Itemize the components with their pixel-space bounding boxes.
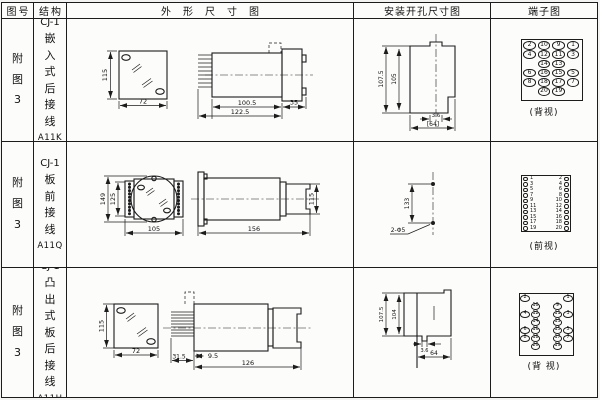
- dim-body-length: 100.5: [238, 99, 257, 107]
- terminal-9: 9: [553, 303, 562, 310]
- terminal-5: 5: [563, 327, 572, 334]
- terminal-10: 10: [538, 41, 550, 50]
- terminal-20: 20: [538, 87, 550, 96]
- header-outline: 外形尺寸图: [67, 3, 354, 19]
- row1-fig-no: 附图3: [2, 19, 34, 142]
- dim-front-inner-height: 125: [109, 193, 117, 205]
- terminal-4: 4: [523, 50, 535, 59]
- terminal-7: 7: [567, 78, 579, 87]
- dim-total-length: 156: [248, 225, 260, 233]
- header-structure-label: 结构: [39, 3, 63, 18]
- terminal-16: 16: [531, 327, 540, 334]
- drawing-table-sheet: 图号 结构 外形尺寸图 安装开孔尺寸图 端子图 附图3 CJ-1 嵌入式后接线 …: [1, 2, 598, 398]
- terminal-1: 1: [567, 41, 579, 50]
- terminal-19: 19: [552, 87, 564, 96]
- dim-cutout-width: 64: [430, 350, 438, 357]
- drawing-table: 图号 结构 外形尺寸图 安装开孔尺寸图 端子图 附图3 CJ-1 嵌入式后接线 …: [2, 3, 597, 397]
- row2-outline-cell: 149 125 105 156 115: [67, 142, 354, 268]
- dim-side-height: 115: [308, 193, 316, 205]
- terminal-circle-4: [564, 182, 568, 186]
- row2-fig-no: 附图3: [2, 142, 34, 268]
- dim-offset: 9.5: [208, 352, 218, 360]
- terminal-6: 6: [523, 69, 535, 78]
- row2-structure: CJ-1 板前接线 A11Q: [34, 142, 67, 268]
- terminal-circle-17: [523, 221, 527, 225]
- dim-total-length: 122.5: [231, 108, 250, 116]
- mounting-drawing-a11q: 133 2-Φ5: [354, 142, 491, 267]
- fig-no-text: 附图3: [11, 49, 24, 112]
- row1-structure: CJ-1 嵌入式后接线 A11K: [34, 19, 67, 142]
- dim-cutout-inner-height: 105: [391, 73, 398, 85]
- row2-mounting-cell: 133 2-Φ5: [354, 142, 491, 268]
- fig-no-text: 附图3: [11, 301, 24, 364]
- dim-cutout-inner-height: 104: [392, 309, 398, 320]
- terminal-circle-15: [523, 215, 527, 219]
- terminal-circle-14: [564, 210, 568, 214]
- terminal-8: 8: [520, 335, 529, 342]
- terminal-circle-10: [564, 199, 568, 203]
- terminal-18: 18: [531, 335, 540, 342]
- dim-front-height: 115: [101, 69, 109, 81]
- terminal-15: 15: [553, 327, 562, 334]
- label-hole-spec: 2-Φ5: [391, 227, 406, 234]
- terminal-circle-7: [523, 193, 527, 197]
- mounting-drawing-a11k: 107.5 105 3.6 [64]: [354, 19, 491, 141]
- dim-cutout-outer-height: 107.5: [379, 306, 385, 322]
- terminal-17: 17: [553, 335, 562, 342]
- dim-cutout-outer-height: 107.5: [378, 70, 385, 87]
- structure-code: A11K: [38, 133, 62, 142]
- dim-notch-width: 3.6: [421, 348, 429, 354]
- structure-model: CJ-1: [40, 19, 60, 28]
- dim-front-width: 72: [132, 347, 140, 355]
- terminal-circle-2: [564, 177, 568, 181]
- terminal-circle-16: [564, 215, 568, 219]
- dim-front-height: 149: [99, 193, 107, 205]
- row1-mounting-cell: 107.5 105 3.6 [64]: [354, 19, 491, 142]
- dim-hole-span: 133: [404, 198, 411, 210]
- terminal-7: 7: [563, 335, 572, 342]
- header-mounting: 安装开孔尺寸图: [354, 3, 491, 19]
- row3-structure: CJ-1 凸出式板后接线 A11H: [34, 268, 67, 397]
- terminal-13: 13: [553, 319, 562, 326]
- terminal-9: 9: [552, 41, 564, 50]
- terminal-4: 4: [520, 311, 529, 318]
- header-terminal: 端子图: [491, 3, 597, 19]
- terminal-circle-20: [564, 226, 568, 230]
- terminal-circle-19: [523, 226, 527, 230]
- header-structure: 结构: [34, 3, 67, 19]
- terminal-8: 8: [523, 78, 535, 87]
- structure-model: CJ-1: [40, 158, 60, 169]
- terminal-3: 3: [563, 311, 572, 318]
- terminal-17: 17: [552, 78, 564, 87]
- terminal-circle-1: [523, 177, 527, 181]
- terminal-6: 6: [520, 327, 529, 334]
- structure-desc: 凸出式板后接线: [44, 275, 57, 391]
- header-fig-no-label: 图号: [7, 3, 31, 18]
- terminal-caption: (背 视): [491, 359, 597, 372]
- dim-front-width: 105: [148, 225, 160, 233]
- dim-body-length: 126: [242, 359, 254, 367]
- terminal-caption: (背视): [491, 105, 597, 118]
- terminal-box: [519, 293, 574, 356]
- row3-mounting-cell: 107.5 104 3.6 64: [354, 268, 491, 397]
- row2-terminal-cell: (前视) 1357911131517192468101214161820: [491, 142, 597, 268]
- terminal-13: 13: [552, 60, 564, 69]
- terminal-20: 20: [531, 343, 540, 350]
- structure-desc: 嵌入式后接线: [44, 31, 57, 130]
- terminal-circle-9: [523, 199, 527, 203]
- dim-notch-width: 3.6: [432, 113, 441, 119]
- terminal-circle-8: [564, 193, 568, 197]
- row3-outline-cell: 115 72 9.5 31.5 126: [67, 268, 354, 397]
- row1-terminal-cell: (背视) 2109141211314136161558181772019: [491, 19, 597, 142]
- row3-terminal-cell: (背 视) 2104121461681820193111351571719: [491, 268, 597, 397]
- terminal-circle-13: [523, 210, 527, 214]
- terminal-11: 11: [552, 50, 564, 59]
- terminal-1: 1: [563, 295, 572, 302]
- terminal-11: 11: [553, 311, 562, 318]
- header-outline-label: 外形尺寸图: [161, 3, 271, 18]
- structure-model: CJ-1: [40, 268, 60, 272]
- terminal-12: 12: [538, 50, 550, 59]
- terminal-14: 14: [531, 319, 540, 326]
- structure-desc: 板前接线: [44, 172, 57, 238]
- terminal-3: 3: [567, 50, 579, 59]
- dim-cutout-width: [64]: [427, 121, 439, 128]
- outline-drawing-a11h: 115 72 9.5 31.5 126: [67, 268, 354, 397]
- header-mounting-label: 安装开孔尺寸图: [384, 3, 461, 18]
- row3-fig-no: 附图3: [2, 268, 34, 397]
- row1-outline-cell: 115 72 100.5 35 122.5: [67, 19, 354, 142]
- terminal-circle-11: [523, 204, 527, 208]
- structure-code: A11Q: [37, 241, 62, 251]
- dim-front-height: 115: [98, 320, 106, 332]
- terminal-circle-5: [523, 188, 527, 192]
- terminal-circle-3: [523, 182, 527, 186]
- terminal-num-19: 19: [530, 226, 540, 231]
- terminal-2: 2: [523, 41, 535, 50]
- terminal-12: 12: [531, 311, 540, 318]
- fig-no-text: 附图3: [11, 173, 24, 236]
- dim-flange-depth: 35: [290, 99, 298, 107]
- terminal-num-20: 20: [551, 226, 562, 231]
- terminal-circle-12: [564, 204, 568, 208]
- terminal-2: 2: [520, 295, 529, 302]
- terminal-15: 15: [552, 69, 564, 78]
- dim-front-width: 72: [139, 98, 147, 106]
- outline-drawing-a11q: 149 125 105 156 115: [67, 142, 354, 267]
- mounting-drawing-a11h: 107.5 104 3.6 64: [354, 268, 491, 397]
- header-terminal-label: 端子图: [528, 3, 561, 18]
- terminal-19: 19: [553, 343, 562, 350]
- header-fig-no: 图号: [2, 3, 34, 19]
- terminal-10: 10: [531, 303, 540, 310]
- dim-pin-length: 31.5: [172, 354, 186, 361]
- outline-drawing-a11k: 115 72 100.5 35 122.5: [67, 19, 354, 141]
- terminal-circle-18: [564, 221, 568, 225]
- terminal-caption: (前视): [491, 239, 597, 252]
- terminal-circle-6: [564, 188, 568, 192]
- terminal-18: 18: [538, 78, 550, 87]
- structure-code: A11H: [37, 394, 62, 397]
